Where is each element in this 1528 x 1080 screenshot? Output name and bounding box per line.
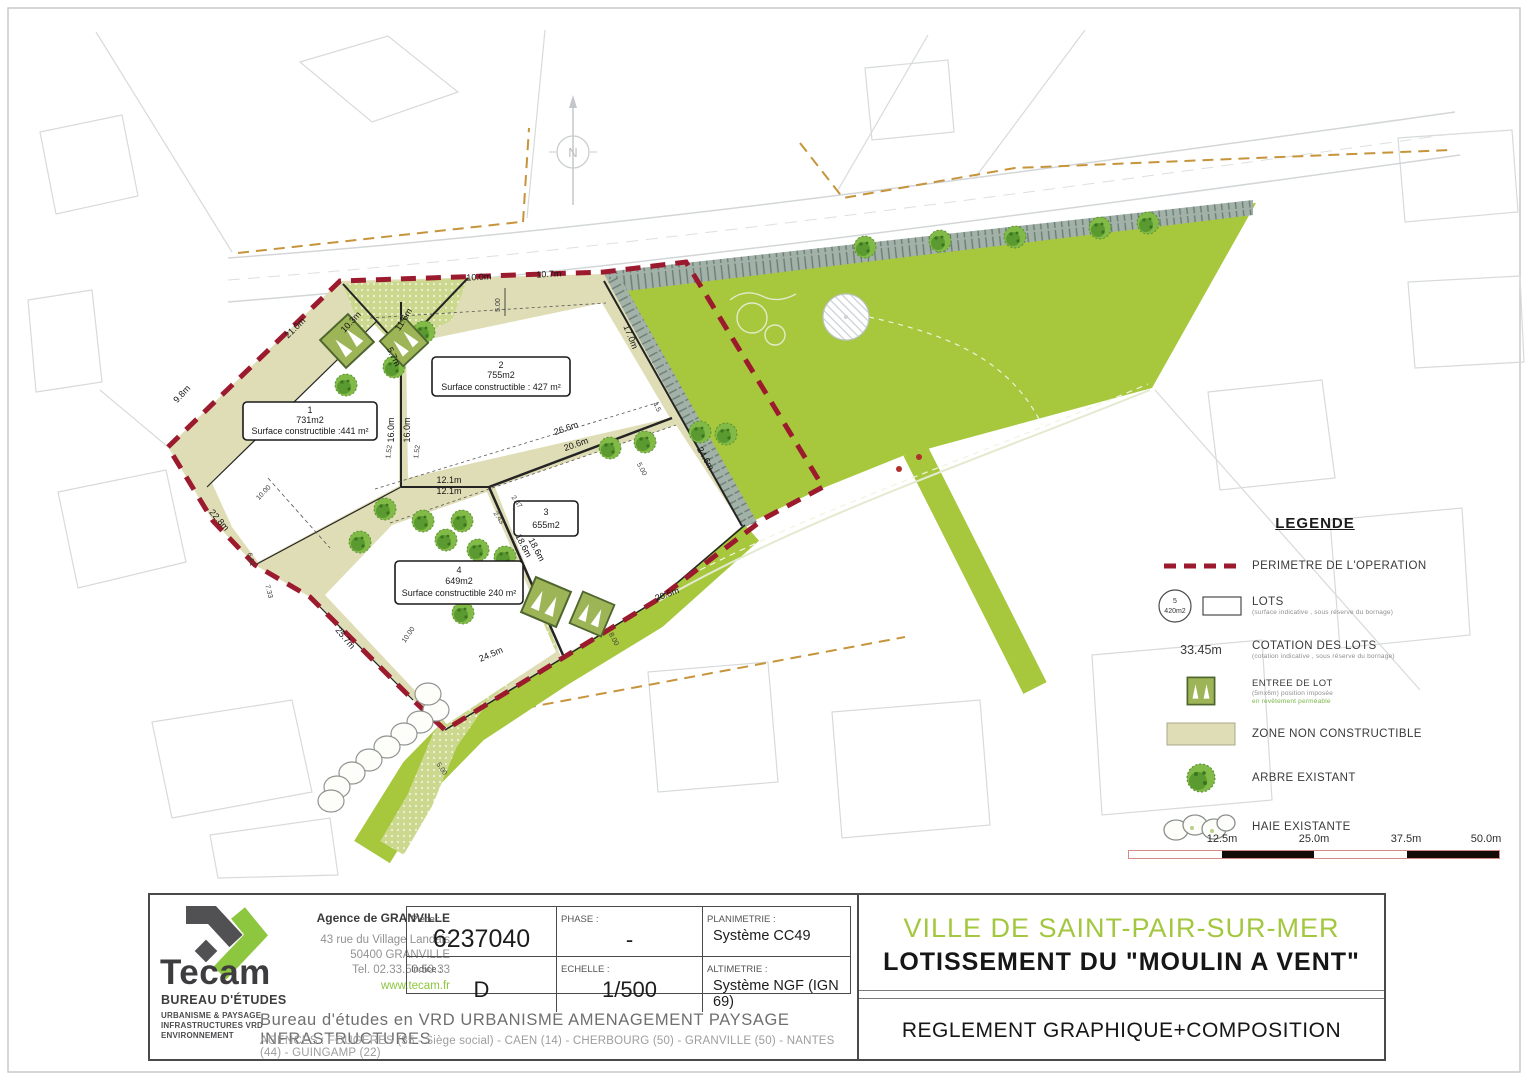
- legend-cotation-sub: (cotation indicative , sous réserve du b…: [1252, 653, 1395, 660]
- title-block: Tecam BUREAU D'ÉTUDES URBANISME & PAYSAG…: [148, 893, 1386, 1061]
- north-letter: N: [568, 145, 577, 160]
- scale-label-12-5: 12.5m: [1207, 833, 1238, 845]
- title-divider-2: [859, 998, 1384, 999]
- legend-row-arbre: ARBRE EXISTANT: [1150, 760, 1480, 796]
- indice-value: D: [411, 977, 552, 1003]
- piece-cell: Pièce : 6237040: [407, 907, 557, 957]
- phase-cell: PHASE : -: [557, 907, 703, 957]
- lot3-label: 3 655m2: [514, 501, 578, 536]
- tecam-logo-sub: BUREAU D'ÉTUDES: [161, 993, 287, 1007]
- legend-cotation-label: COTATION DES LOTS: [1252, 640, 1395, 652]
- legend-row-perimetre: PERIMETRE DE L'OPERATION: [1150, 560, 1480, 572]
- title-block-left: Tecam BUREAU D'ÉTUDES URBANISME & PAYSAG…: [150, 895, 859, 1059]
- scale-seg-4: [1407, 851, 1500, 858]
- zone-non-constructible-icon: [1150, 722, 1252, 746]
- lot3-num: 3: [543, 507, 548, 517]
- legend-zone-label: ZONE NON CONSTRUCTIBLE: [1252, 728, 1422, 740]
- title-divider-1: [859, 990, 1384, 991]
- logo-line-1: URBANISME & PAYSAGE: [161, 1011, 263, 1021]
- indice-cell: Indice : D: [407, 957, 557, 1012]
- legend-row-entree: ENTREE DE LOT (5mx6m) position imposée e…: [1150, 674, 1480, 708]
- lot-entrance-icon: [1150, 674, 1252, 708]
- lot1-area-label: 731m2: [296, 415, 324, 425]
- dim-7-33: 7.33: [263, 584, 273, 599]
- legend-panel: LEGENDE PERIMETRE DE L'OPERATION 5 420m2…: [1150, 515, 1480, 858]
- lot4-label: 4 649m2 Surface constructible 240 m²: [395, 561, 523, 604]
- legend-lots-label: LOTS: [1252, 596, 1393, 608]
- lot-badge-num: 5: [1173, 598, 1177, 605]
- title-block-right: VILLE DE SAINT-PAIR-SUR-MER LOTISSEMENT …: [859, 895, 1384, 1059]
- legend-haie-label: HAIE EXISTANTE: [1252, 821, 1351, 833]
- windmill-circle: [823, 294, 869, 340]
- lot4-num: 4: [456, 565, 461, 575]
- legend-arbre-label: ARBRE EXISTANT: [1252, 772, 1356, 784]
- scale-label-50-0: 50.0m: [1471, 833, 1502, 845]
- cotation-sample: 33.45m: [1150, 643, 1252, 657]
- legend-row-cotation: 33.45m COTATION DES LOTS (cotation indic…: [1150, 640, 1480, 660]
- altimetrie-cell: ALTIMETRIE : Système NGF (IGN 69): [703, 957, 850, 1012]
- tecam-logo-name: Tecam: [160, 953, 271, 993]
- city-title: VILLE DE SAINT-PAIR-SUR-MER: [859, 913, 1384, 944]
- lot4-surface: Surface constructible 240 m²: [402, 588, 517, 598]
- lot1-label: 1 731m2 Surface constructible :441 m²: [243, 402, 377, 440]
- legend-row-zone: ZONE NON CONSTRUCTIBLE: [1150, 722, 1480, 746]
- phase-value: -: [561, 927, 698, 953]
- lot-badge-area: 420m2: [1164, 608, 1186, 615]
- legend-entree-label: ENTREE DE LOT: [1252, 678, 1333, 689]
- altimetrie-label: ALTIMETRIE :: [707, 964, 768, 975]
- lot2-num: 2: [498, 360, 503, 370]
- north-arrow: N: [549, 95, 597, 205]
- legend-lots-text: LOTS (surface indicative , sous réserve …: [1252, 596, 1393, 616]
- scale-seg-2: [1222, 851, 1315, 858]
- piece-number: 6237040: [411, 925, 552, 954]
- scale-seg-1: [1129, 851, 1222, 858]
- perimeter-line-icon: [1150, 561, 1252, 571]
- legend-perimetre-label: PERIMETRE DE L'OPERATION: [1252, 560, 1427, 572]
- lot2-label: 2 755m2 Surface constructible : 427 m²: [432, 357, 570, 396]
- drawing-info-grid: Pièce : 6237040 PHASE : - PLANIMETRIE : …: [406, 906, 851, 994]
- echelle-value: 1/500: [561, 977, 698, 1003]
- dim-16-0m-a: 16.0m: [386, 417, 396, 442]
- scale-bar: 12.5m 25.0m 37.5m 50.0m: [1128, 833, 1500, 863]
- legend-title: LEGENDE: [1150, 515, 1480, 532]
- planimetrie-label: PLANIMETRIE :: [707, 914, 776, 925]
- existing-tree-icon: [1150, 760, 1252, 796]
- dim-12-1m-b: 12.1m: [436, 486, 461, 496]
- logo-line-3: ENVIRONNEMENT: [161, 1031, 263, 1041]
- legend-entree-text: ENTREE DE LOT (5mx6m) position imposée e…: [1252, 678, 1333, 705]
- echelle-cell: ECHELLE : 1/500: [557, 957, 703, 1012]
- legend-row-lots: 5 420m2 LOTS (surface indicative , sous …: [1150, 586, 1480, 626]
- indice-label: Indice :: [411, 964, 442, 975]
- lot1-surface: Surface constructible :441 m²: [251, 426, 368, 436]
- document-title: REGLEMENT GRAPHIQUE+COMPOSITION: [859, 1019, 1384, 1043]
- legend-entree-sub2: en revêtement perméable: [1252, 698, 1333, 705]
- scale-bar-segments: [1128, 850, 1500, 859]
- scale-label-25-0: 25.0m: [1299, 833, 1330, 845]
- echelle-label: ECHELLE :: [561, 964, 610, 975]
- lot3-area-label: 655m2: [532, 520, 560, 530]
- scale-seg-3: [1314, 851, 1407, 858]
- legend-entree-sub1: (5mx6m) position imposée: [1252, 690, 1333, 697]
- lot-badge-icon: 5 420m2: [1150, 586, 1252, 626]
- legend-cotation-text: COTATION DES LOTS (cotation indicative ,…: [1252, 640, 1395, 660]
- dim-12-1m-a: 12.1m: [436, 475, 461, 485]
- tecam-logo-lines: URBANISME & PAYSAGE INFRASTRUCTURES VRD …: [161, 1011, 263, 1041]
- planimetrie-cell: PLANIMETRIE : Système CC49: [703, 907, 850, 957]
- dim-5-00-a: 5.00: [495, 298, 502, 312]
- dim-9-8m: 9.8m: [171, 383, 192, 404]
- dim-16-0m-b: 16.0m: [402, 417, 412, 442]
- scale-label-37-5: 37.5m: [1391, 833, 1422, 845]
- planimetrie-value: Système CC49: [713, 928, 846, 944]
- dim-10-0m: 10.0m: [466, 271, 492, 282]
- altimetrie-value: Système NGF (IGN 69): [713, 978, 846, 1010]
- phase-label: PHASE :: [561, 914, 599, 925]
- lot2-surface: Surface constructible : 427 m²: [441, 382, 561, 392]
- project-title: LOTISSEMENT DU "MOULIN A VENT": [859, 948, 1384, 977]
- footer-agencies: AGENCES : FOUGERES (35 - Siège social) -…: [260, 1035, 857, 1059]
- logo-line-2: INFRASTRUCTURES VRD: [161, 1021, 263, 1031]
- lot2-area-label: 755m2: [487, 370, 515, 380]
- piece-label: Pièce :: [411, 914, 440, 925]
- lot1-num: 1: [307, 405, 312, 415]
- lot4-area-label: 649m2: [445, 576, 473, 586]
- legend-lots-sub: (surface indicative , sous réserve du bo…: [1252, 609, 1393, 616]
- dim-10-7m: 10.7m: [536, 268, 562, 279]
